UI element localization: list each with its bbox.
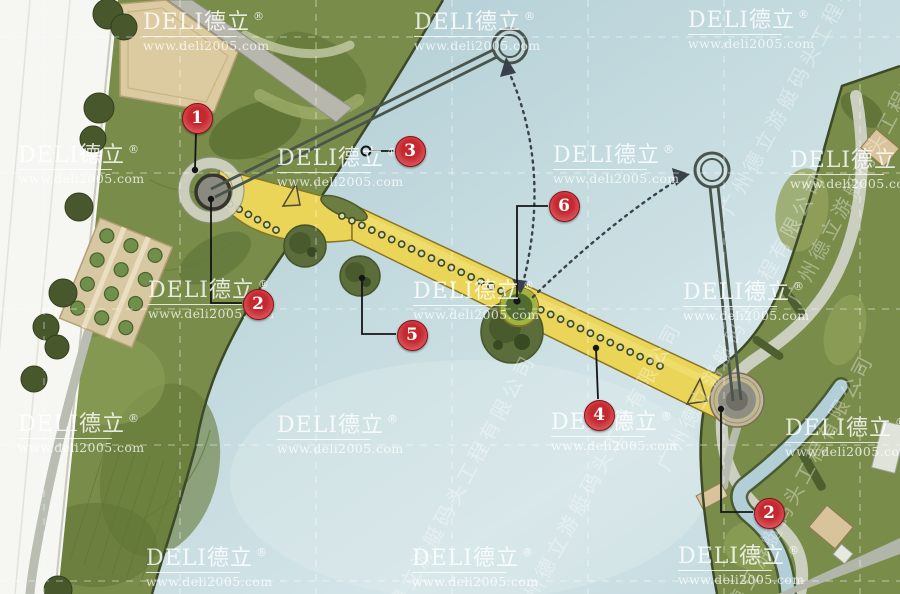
site-plan: DELI德立®www.deli2005.comDELI德立®www.deli20… [0,0,900,594]
callout-marker-6: 6 [549,191,580,222]
east-landing-plaza [710,373,764,427]
callout-marker-4: 4 [584,400,615,431]
callout-marker-1: 1 [182,103,213,134]
bridge-planter [500,288,539,327]
tree [284,225,326,267]
callout-marker-2: 2 [754,498,785,529]
callout-marker-5: 5 [397,320,428,351]
callout-marker-2: 2 [243,289,274,320]
callout-marker-3: 3 [395,136,426,167]
water-glare [230,360,710,594]
